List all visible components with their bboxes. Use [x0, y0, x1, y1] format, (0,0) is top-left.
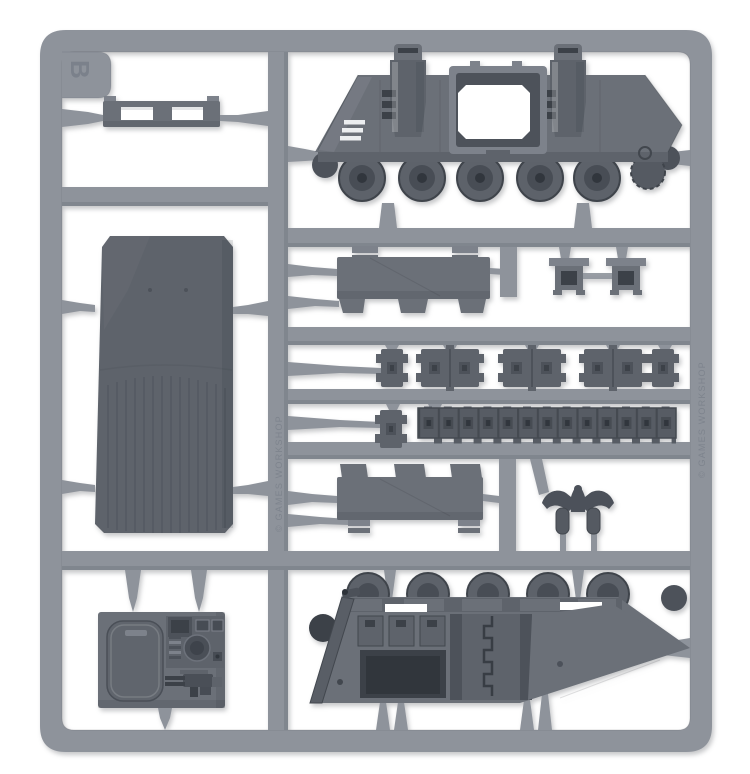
eagle-head — [574, 485, 582, 493]
sprue-letter: B — [65, 60, 95, 79]
part-large-roof-panel: Large flat hull roof panel — [95, 236, 233, 533]
molded-copyright-text: © GAMES WORKSHOP — [274, 415, 284, 532]
part-hatch-console-plate: Plate with hatch door, control console a… — [98, 612, 225, 708]
eagle-pendant — [587, 508, 600, 534]
part-track-guard-rear: Second track guard, inverted — [337, 464, 483, 533]
part-track-link-segments: Row of short track-link segments — [376, 345, 679, 391]
runner-spur-b — [499, 459, 516, 551]
molded-emblem — [557, 661, 563, 667]
part-hull-side-exterior: Tank hull side, exterior, with road whee… — [312, 44, 682, 201]
seats — [358, 616, 445, 646]
track-run-strip — [418, 408, 676, 438]
part-vent-bar: Slotted vent bar — [103, 96, 220, 127]
sprue-group: Rectangular sprue frame with runners B — [40, 30, 712, 752]
hatch-handle — [125, 630, 147, 636]
part-socket-brackets: Two small square socket brackets — [549, 258, 646, 295]
hull-slot — [385, 604, 427, 612]
door-opening — [449, 61, 547, 158]
part-track-guard-front: Track guard with mounting tabs — [337, 246, 490, 313]
eagle-pendant — [556, 508, 569, 534]
part-aquila: Imperial eagle ornament with two pendant… — [542, 485, 614, 534]
hatch-door — [107, 621, 163, 701]
socket-bracket — [606, 258, 646, 295]
sprue-illustration: Rectangular sprue frame with runners B — [0, 0, 750, 774]
socket-bracket — [549, 258, 589, 295]
part-hull-side-interior: Tank hull side, interior, with seats, fi… — [309, 573, 690, 703]
end-wheel — [661, 585, 687, 611]
molded-copyright-text-rail: © GAMES WORKSHOP — [697, 361, 707, 478]
molded-emblem — [337, 679, 343, 685]
control-console — [166, 616, 224, 668]
sprue-photo: Rectangular sprue frame with runners B — [0, 0, 750, 774]
